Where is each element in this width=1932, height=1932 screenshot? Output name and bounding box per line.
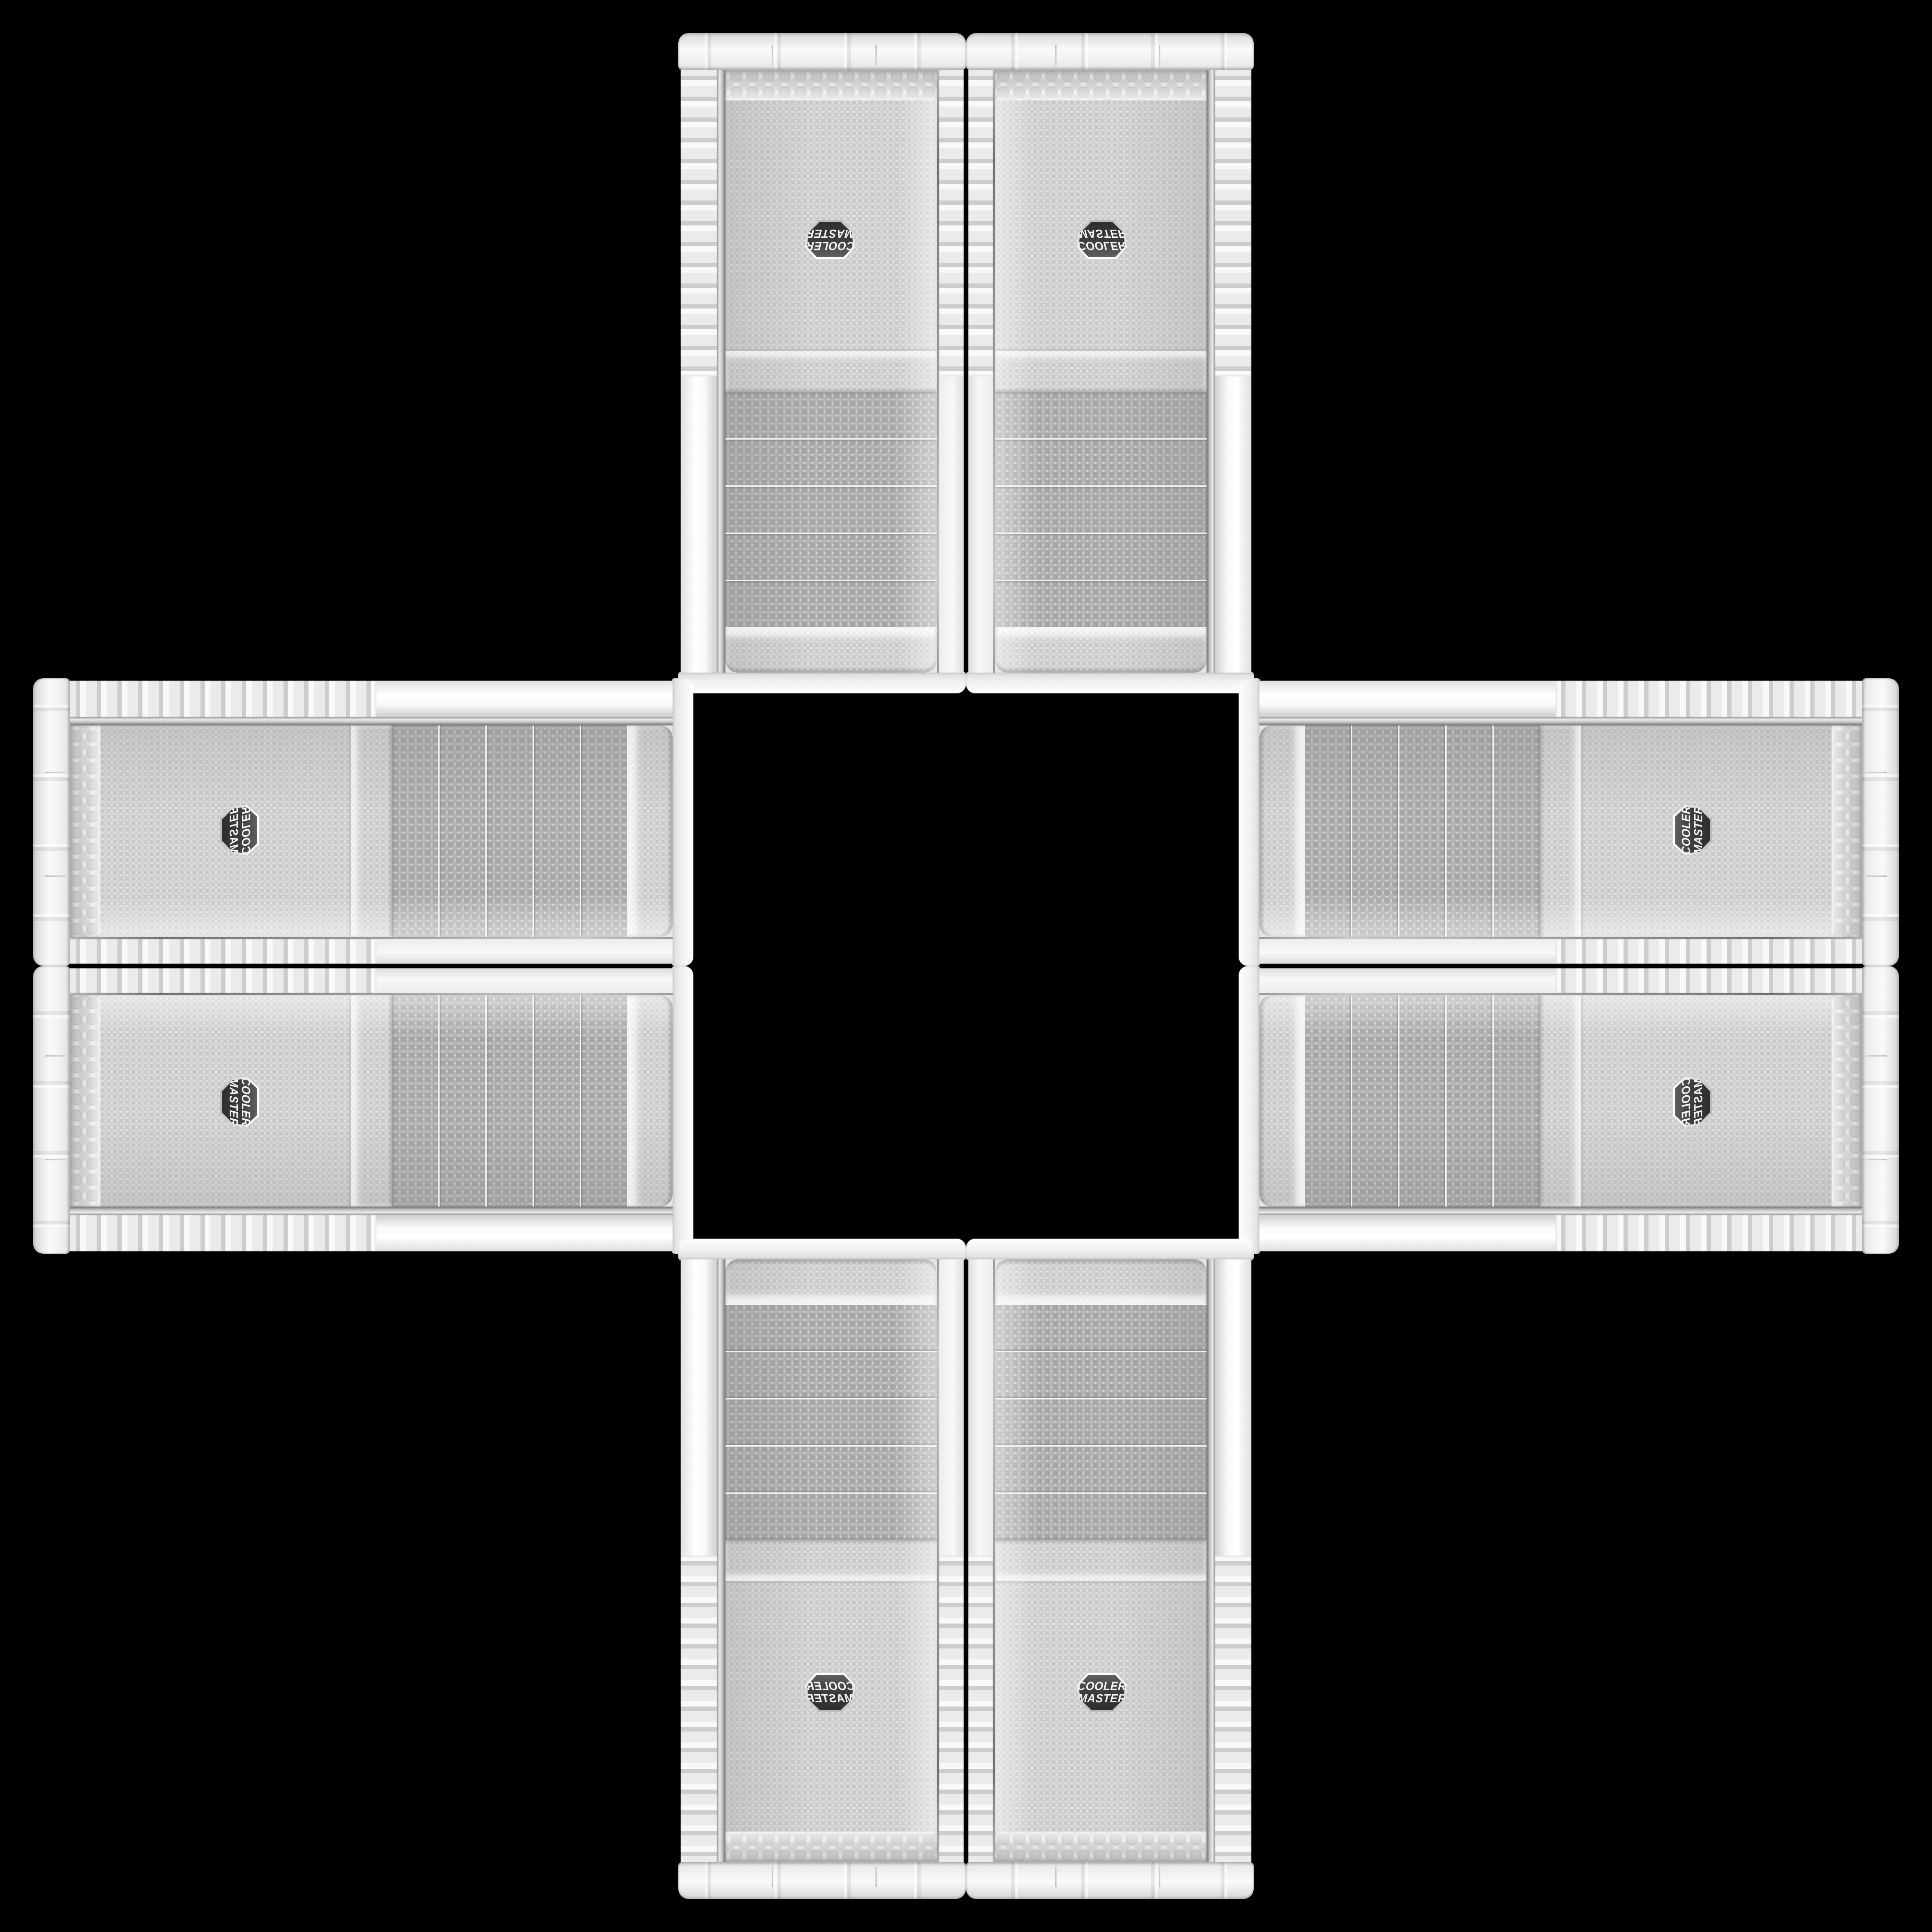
cap-seam [45, 772, 66, 773]
front-mesh: COOLER MASTER [69, 725, 673, 937]
chrome-trim-right [69, 1207, 673, 1215]
pc-case-bottom-left: COOLER MASTER [681, 1239, 964, 1899]
case-front-panel: COOLER MASTER [681, 69, 964, 673]
case-top-cap [672, 678, 693, 966]
left-bezel-column [968, 69, 993, 673]
drive-bay-cover [995, 487, 1207, 534]
left-bezel-column [939, 69, 964, 673]
case-bottom-cap [33, 966, 70, 1254]
cooler-master-logo-face: COOLER MASTER [807, 222, 853, 257]
mesh-mid-band [351, 725, 392, 937]
side-panel-edge [1259, 1215, 1863, 1251]
chrome-trim-right [1207, 69, 1215, 673]
drive-bay-cover [534, 995, 581, 1207]
cap-seam [45, 1055, 66, 1057]
side-grip-ribs [968, 1556, 993, 1862]
mesh-mid-band [1540, 725, 1581, 937]
mesh-top-band [1259, 995, 1304, 1207]
mesh-bottom-band [1832, 995, 1863, 1207]
side-grip-ribs [70, 968, 376, 993]
chrome-trim-left [937, 1259, 939, 1863]
cap-seam [1866, 1159, 1887, 1160]
pc-case-right-top: COOLER MASTER [1239, 681, 1899, 964]
side-grip-ribs [70, 1215, 376, 1251]
mesh-top-band [628, 725, 673, 937]
intake-mesh: COOLER MASTER [1581, 725, 1832, 937]
case-bottom-cap [966, 1862, 1254, 1899]
logo-text-line1: COOLER [240, 805, 252, 855]
front-mesh: COOLER MASTER [1259, 995, 1863, 1207]
drive-bay-cover [995, 392, 1207, 440]
pc-case-top-right: COOLER MASTER [968, 33, 1251, 693]
logo-text-line2: MASTER [227, 806, 240, 855]
chrome-trim-left [69, 937, 673, 939]
drive-bay-cover [1351, 725, 1398, 937]
logo-text-line1: COOLER [1077, 240, 1126, 252]
logo-text-line2: MASTER [806, 1692, 855, 1705]
drive-bay-cover [725, 487, 937, 534]
cap-seam [875, 45, 877, 66]
intake-mesh: COOLER MASTER [725, 1581, 937, 1832]
chrome-trim-left [1259, 937, 1863, 939]
drive-bay-cover [487, 995, 534, 1207]
side-grip-ribs [939, 70, 964, 376]
cap-seam [1866, 772, 1887, 773]
chrome-trim-right [69, 717, 673, 725]
mesh-bottom-band [69, 725, 100, 937]
cooler-master-logo: COOLER MASTER [220, 805, 259, 855]
drive-bays [725, 392, 937, 628]
chrome-trim-right [717, 1259, 725, 1863]
drive-bay-cover [725, 1398, 937, 1445]
side-grip-ribs [681, 70, 717, 376]
mesh-mid-band [995, 351, 1207, 392]
cap-seam [1159, 45, 1160, 66]
mesh-bottom-band [995, 69, 1207, 100]
drive-bays [725, 1304, 937, 1540]
drive-bay-cover [392, 995, 440, 1207]
side-grip-ribs [968, 70, 993, 376]
logo-text-line2: MASTER [806, 227, 855, 240]
pc-case-left-top: COOLER MASTER [33, 681, 693, 964]
drive-bay-cover [725, 1445, 937, 1492]
left-bezel-column [1259, 968, 1863, 993]
front-mesh: COOLER MASTER [995, 69, 1207, 673]
case-top-cap [678, 1239, 966, 1260]
cooler-master-logo: COOLER MASTER [1673, 805, 1712, 855]
cooler-master-logo: COOLER MASTER [1077, 1673, 1127, 1712]
drive-bays [392, 725, 628, 937]
cap-seam [772, 45, 773, 66]
pc-case-right-bottom: COOLER MASTER [1239, 968, 1899, 1251]
mesh-mid-band [725, 1540, 937, 1581]
left-bezel-column [968, 1259, 993, 1863]
drive-bay-cover [1492, 725, 1540, 937]
mesh-top-band [725, 628, 937, 673]
drive-bays [1304, 725, 1540, 937]
drive-bay-cover [1398, 995, 1445, 1207]
drive-bays [392, 995, 628, 1207]
mesh-top-band [1259, 725, 1304, 937]
logo-text-line1: COOLER [240, 1077, 252, 1126]
mesh-top-band [995, 628, 1207, 673]
case-front-panel: COOLER MASTER [1259, 681, 1863, 964]
drive-bay-cover [995, 1304, 1207, 1351]
cap-seam [772, 1866, 773, 1887]
cap-seam [1866, 1055, 1887, 1057]
logo-text-line2: MASTER [1692, 806, 1705, 855]
cooler-master-logo-face: COOLER MASTER [807, 1675, 853, 1710]
cooler-master-logo: COOLER MASTER [1673, 1077, 1712, 1127]
side-panel-edge [681, 69, 717, 673]
logo-text-line2: MASTER [227, 1077, 240, 1126]
side-panel-edge [681, 1259, 717, 1863]
chrome-trim-right [717, 69, 725, 673]
intake-mesh: COOLER MASTER [1581, 995, 1832, 1207]
mesh-bottom-band [69, 995, 100, 1207]
drive-bay-cover [392, 725, 440, 937]
logo-text-line1: COOLER [805, 1680, 855, 1692]
pc-case-left-bottom: COOLER MASTER [33, 968, 693, 1251]
side-panel-edge [1215, 69, 1251, 673]
drive-bay-cover [725, 581, 937, 628]
mesh-bottom-band [725, 1832, 937, 1863]
cooler-master-logo-face: COOLER MASTER [222, 807, 257, 853]
cooler-master-logo: COOLER MASTER [805, 220, 855, 259]
case-front-panel: COOLER MASTER [968, 1259, 1251, 1863]
drive-bays [995, 392, 1207, 628]
case-top-cap [966, 672, 1254, 693]
case-top-cap [966, 1239, 1254, 1260]
drive-bay-cover [725, 1492, 937, 1540]
case-front-panel: COOLER MASTER [69, 968, 673, 1251]
mesh-bottom-band [1832, 725, 1863, 937]
mesh-mid-band [725, 351, 937, 392]
logo-text-line2: MASTER [1692, 1077, 1705, 1126]
drive-bay-cover [725, 1304, 937, 1351]
case-front-panel: COOLER MASTER [681, 1259, 964, 1863]
front-mesh: COOLER MASTER [725, 69, 937, 673]
drive-bay-cover [1445, 995, 1492, 1207]
side-grip-ribs [1215, 1556, 1251, 1862]
side-grip-ribs [70, 681, 376, 717]
drive-bays [1304, 995, 1540, 1207]
front-mesh: COOLER MASTER [995, 1259, 1207, 1863]
chrome-trim-left [937, 69, 939, 673]
drive-bay-cover [995, 1445, 1207, 1492]
drive-bay-cover [581, 995, 628, 1207]
logo-text-line1: COOLER [1680, 805, 1692, 855]
drive-bay-cover [1492, 995, 1540, 1207]
mesh-bottom-band [725, 69, 937, 100]
side-grip-ribs [1215, 70, 1251, 376]
chrome-trim-right [1207, 1259, 1215, 1863]
logo-text-line2: MASTER [1077, 1692, 1126, 1705]
drive-bay-cover [440, 725, 487, 937]
pc-case-top-left: COOLER MASTER [681, 33, 964, 693]
logo-text-line1: COOLER [1680, 1077, 1692, 1126]
case-front-panel: COOLER MASTER [69, 681, 673, 964]
side-panel-edge [1215, 1259, 1251, 1863]
intake-mesh: COOLER MASTER [100, 725, 351, 937]
drive-bay-cover [995, 1398, 1207, 1445]
left-bezel-column [69, 968, 673, 993]
chrome-trim-right [1259, 717, 1863, 725]
left-bezel-column [939, 1259, 964, 1863]
drive-bay-cover [1398, 725, 1445, 937]
cooler-master-logo: COOLER MASTER [1077, 220, 1127, 259]
drive-bay-cover [725, 1351, 937, 1398]
cooler-master-logo-face: COOLER MASTER [222, 1079, 257, 1125]
cap-seam [45, 875, 66, 877]
drive-bay-cover [1445, 725, 1492, 937]
mesh-mid-band [1540, 995, 1581, 1207]
collage-canvas: COOLER MASTER [0, 0, 1932, 1932]
case-bottom-cap [1862, 966, 1899, 1254]
left-bezel-column [69, 939, 673, 964]
drive-bay-cover [995, 1492, 1207, 1540]
intake-mesh: COOLER MASTER [100, 995, 351, 1207]
mesh-bottom-band [995, 1832, 1207, 1863]
drive-bay-cover [487, 725, 534, 937]
cap-seam [1866, 875, 1887, 877]
mesh-mid-band [995, 1540, 1207, 1581]
cap-seam [1055, 1866, 1057, 1887]
side-grip-ribs [70, 939, 376, 964]
side-grip-ribs [1556, 939, 1862, 964]
side-panel-edge [69, 681, 673, 717]
cooler-master-logo-face: COOLER MASTER [1079, 1675, 1125, 1710]
mesh-mid-band [351, 995, 392, 1207]
drive-bay-cover [995, 581, 1207, 628]
drive-bays [995, 1304, 1207, 1540]
logo-text-line1: COOLER [805, 240, 855, 252]
intake-mesh: COOLER MASTER [995, 1581, 1207, 1832]
drive-bay-cover [440, 995, 487, 1207]
cap-seam [45, 1159, 66, 1160]
front-mesh: COOLER MASTER [1259, 725, 1863, 937]
drive-bay-cover [725, 534, 937, 581]
case-top-cap [678, 672, 966, 693]
cooler-master-logo-face: COOLER MASTER [1675, 1079, 1710, 1125]
drive-bay-cover [1304, 725, 1351, 937]
case-top-cap [672, 966, 693, 1254]
side-grip-ribs [681, 1556, 717, 1862]
drive-bay-cover [995, 1351, 1207, 1398]
side-grip-ribs [939, 1556, 964, 1862]
mesh-top-band [995, 1259, 1207, 1304]
case-front-panel: COOLER MASTER [1259, 968, 1863, 1251]
pc-case-bottom-right: COOLER MASTER [968, 1239, 1251, 1899]
drive-bay-cover [725, 392, 937, 440]
cooler-master-logo-face: COOLER MASTER [1079, 222, 1125, 257]
case-front-panel: COOLER MASTER [968, 69, 1251, 673]
drive-bay-cover [534, 725, 581, 937]
drive-bay-cover [1304, 995, 1351, 1207]
intake-mesh: COOLER MASTER [725, 100, 937, 351]
cooler-master-logo: COOLER MASTER [805, 1673, 855, 1712]
cooler-master-logo: COOLER MASTER [220, 1077, 259, 1127]
side-grip-ribs [1556, 681, 1862, 717]
case-bottom-cap [678, 1862, 966, 1899]
drive-bay-cover [581, 725, 628, 937]
side-grip-ribs [1556, 968, 1862, 993]
case-bottom-cap [1862, 678, 1899, 966]
drive-bay-cover [995, 440, 1207, 487]
case-bottom-cap [678, 33, 966, 70]
case-bottom-cap [33, 678, 70, 966]
left-bezel-column [1259, 939, 1863, 964]
side-panel-edge [69, 1215, 673, 1251]
drive-bay-cover [725, 440, 937, 487]
cap-seam [1159, 1866, 1160, 1887]
front-mesh: COOLER MASTER [69, 995, 673, 1207]
drive-bay-cover [1351, 995, 1398, 1207]
cap-seam [875, 1866, 877, 1887]
logo-text-line1: COOLER [1077, 1680, 1126, 1692]
logo-text-line2: MASTER [1077, 227, 1126, 240]
side-grip-ribs [1556, 1215, 1862, 1251]
drive-bay-cover [995, 534, 1207, 581]
chrome-trim-right [1259, 1207, 1863, 1215]
case-top-cap [1239, 678, 1260, 966]
case-bottom-cap [966, 33, 1254, 70]
front-mesh: COOLER MASTER [725, 1259, 937, 1863]
mesh-top-band [725, 1259, 937, 1304]
intake-mesh: COOLER MASTER [995, 100, 1207, 351]
cap-seam [1055, 45, 1057, 66]
mesh-top-band [628, 995, 673, 1207]
cooler-master-logo-face: COOLER MASTER [1675, 807, 1710, 853]
side-panel-edge [1259, 681, 1863, 717]
case-top-cap [1239, 966, 1260, 1254]
